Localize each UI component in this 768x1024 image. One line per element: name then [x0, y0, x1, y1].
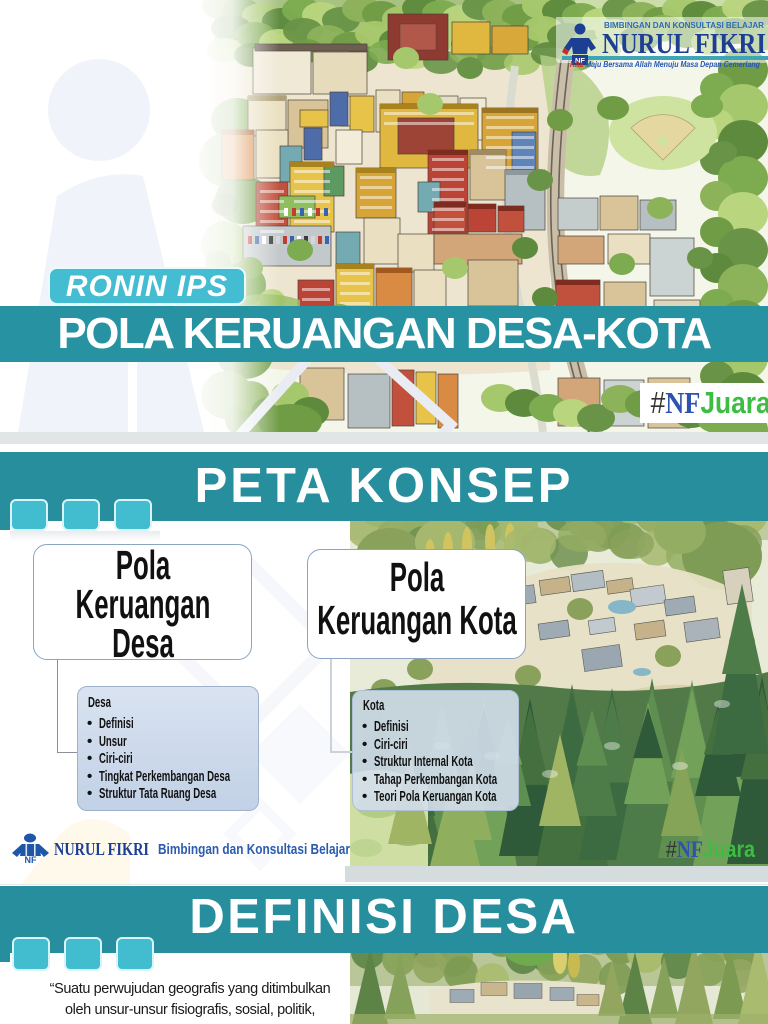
- svg-text:NURUL FIKRI: NURUL FIKRI: [602, 29, 766, 60]
- svg-text:NURUL FIKRI: NURUL FIKRI: [54, 839, 149, 859]
- svg-text:NF: NF: [25, 855, 37, 864]
- svg-text:Bimbingan dan Konsultasi Belaj: Bimbingan dan Konsultasi Belajar: [158, 842, 350, 858]
- svg-text:Kita Maju Bersama Allah Menuju: Kita Maju Bersama Allah Menuju Masa Depa…: [570, 59, 761, 69]
